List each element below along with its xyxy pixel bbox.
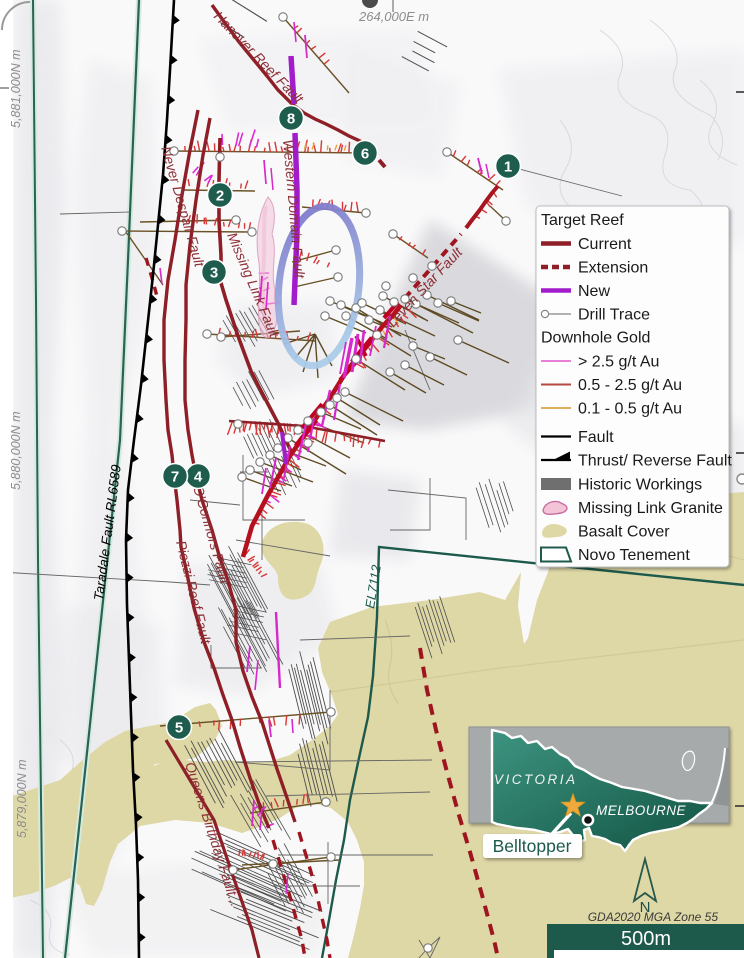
svg-text:3: 3: [210, 265, 218, 282]
svg-text:Basalt Cover: Basalt Cover: [578, 524, 670, 541]
svg-text:Downhole Gold: Downhole Gold: [541, 330, 650, 347]
svg-text:0.5 - 2.5 g/t Au: 0.5 - 2.5 g/t Au: [578, 377, 682, 394]
svg-text:> 2.5 g/t Au: > 2.5 g/t Au: [578, 354, 659, 371]
svg-text:6: 6: [361, 146, 369, 163]
svg-text:GDA2020 MGA Zone 55: GDA2020 MGA Zone 55: [588, 910, 719, 924]
svg-text:5: 5: [175, 720, 183, 737]
svg-text:Historic Workings: Historic Workings: [578, 477, 702, 494]
svg-text:1: 1: [504, 159, 512, 176]
svg-text:500m: 500m: [621, 928, 671, 950]
svg-text:Thrust/ Reverse Fault: Thrust/ Reverse Fault: [578, 453, 732, 470]
svg-text:Drill Trace: Drill Trace: [578, 307, 650, 324]
svg-text:Fault: Fault: [578, 429, 614, 446]
svg-text:264,000E m: 264,000E m: [358, 9, 429, 24]
svg-text:7: 7: [171, 469, 179, 486]
svg-text:0.1 - 0.5 g/t Au: 0.1 - 0.5 g/t Au: [578, 401, 682, 418]
svg-text:VICTORIA: VICTORIA: [494, 772, 578, 787]
svg-text:Extension: Extension: [578, 260, 648, 277]
svg-text:MELBOURNE: MELBOURNE: [596, 803, 687, 818]
svg-text:Missing Link Granite: Missing Link Granite: [578, 500, 723, 517]
svg-text:Novo Tenement: Novo Tenement: [578, 547, 690, 564]
svg-text:8: 8: [287, 111, 295, 128]
svg-text:Belltopper: Belltopper: [493, 836, 572, 856]
svg-text:2: 2: [216, 188, 224, 205]
svg-text:5,879,000N m: 5,879,000N m: [15, 759, 29, 838]
svg-text:Current: Current: [578, 236, 632, 253]
svg-text:New: New: [578, 283, 610, 300]
svg-text:Target Reef: Target Reef: [541, 212, 624, 229]
svg-text:4: 4: [194, 469, 203, 486]
svg-text:5,880,000N m: 5,880,000N m: [9, 411, 23, 490]
svg-text:5,881,000N m: 5,881,000N m: [9, 49, 23, 128]
